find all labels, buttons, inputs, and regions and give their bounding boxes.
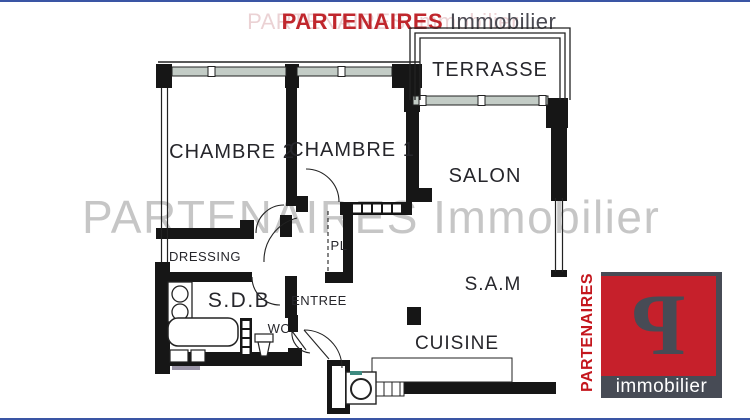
logo-slate-square: P immobilier bbox=[601, 272, 722, 398]
label-dressing: DRESSING bbox=[169, 249, 241, 264]
label-chambre2: CHAMBRE 2 bbox=[169, 141, 295, 163]
logo-vertical-text: PARTENAIRES bbox=[575, 268, 601, 398]
label-salon: SALON bbox=[449, 165, 522, 187]
logo-bottom-text: immobilier bbox=[601, 376, 722, 398]
label-sdb: S.D.B bbox=[208, 289, 270, 312]
logo-red-square: P bbox=[601, 276, 716, 376]
label-terrasse: TERRASSE bbox=[432, 59, 548, 81]
agency-logo: PARTENAIRES P immobilier bbox=[575, 268, 722, 398]
radiator-icon bbox=[353, 205, 401, 213]
label-chambre1: CHAMBRE 1 bbox=[289, 139, 415, 161]
duct-riser-icon bbox=[332, 366, 345, 408]
bathtub-icon bbox=[168, 318, 238, 346]
kitchen-counter-icon bbox=[346, 358, 512, 404]
label-wc: WC bbox=[268, 321, 291, 336]
label-sam: S.A.M bbox=[465, 274, 522, 295]
label-cuisine: CUISINE bbox=[415, 333, 499, 354]
label-entree: ENTREE bbox=[291, 293, 347, 308]
label-pl: PL bbox=[331, 238, 348, 253]
logo-mirrored-p-icon: P bbox=[601, 278, 716, 374]
